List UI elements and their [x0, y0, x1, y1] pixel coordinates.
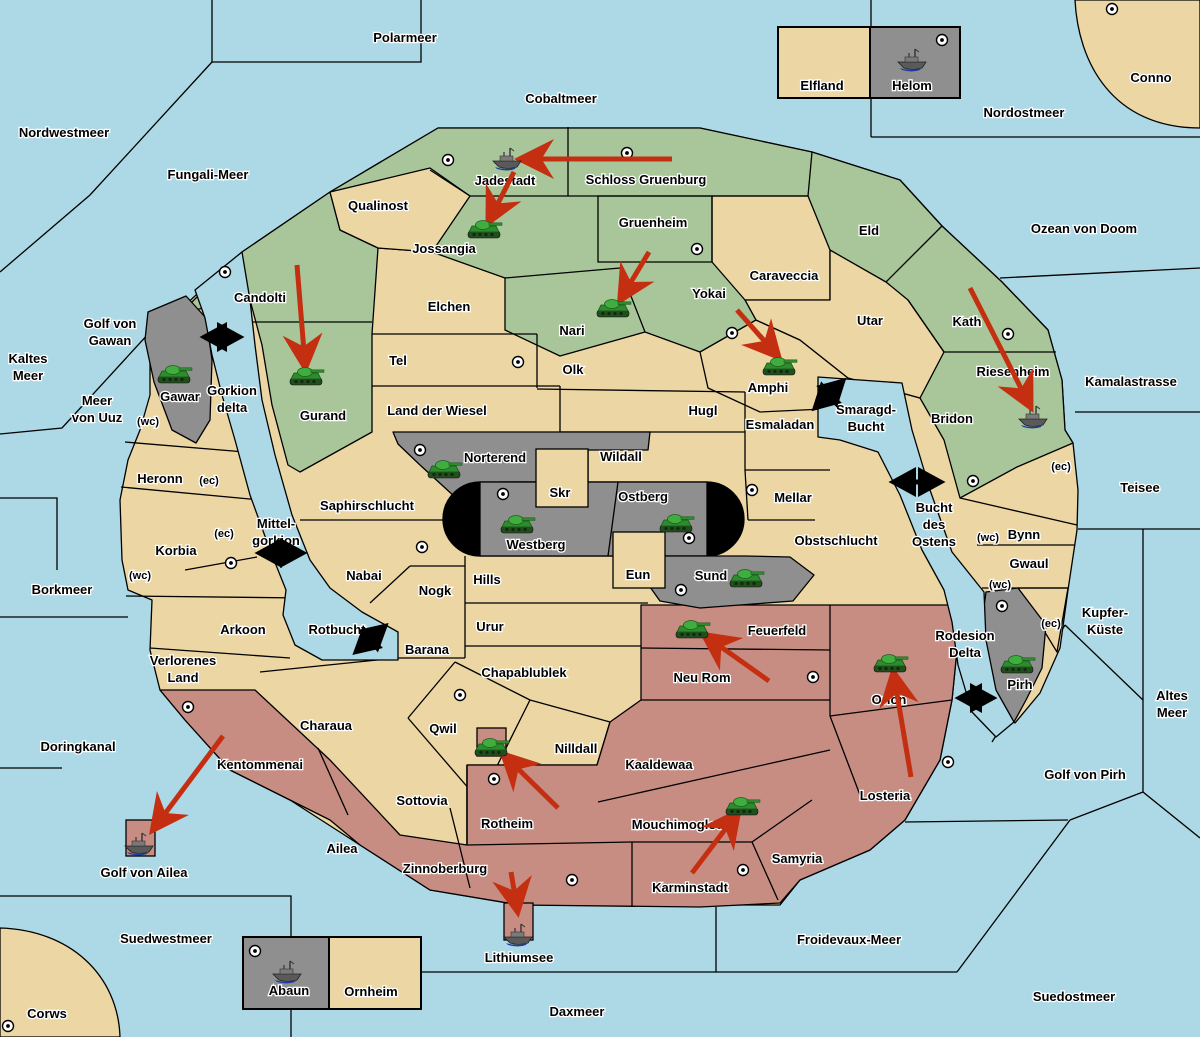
region-label-jossangia: Jossangia: [412, 241, 476, 256]
map-stage: PolarmeerCobaltmeerNordostmeerNordwestme…: [0, 0, 1200, 1037]
region-sund[interactable]: [645, 556, 814, 608]
region-label-gruenheim: Gruenheim: [619, 215, 688, 230]
connection-tag-heronn: (ec): [199, 475, 219, 487]
region-label-candolti: Candolti: [234, 290, 286, 305]
region-label-nordwestmeer: Nordwestmeer: [19, 125, 109, 140]
city-marker-sund: [676, 585, 687, 596]
city-marker-gruenheim: [692, 244, 703, 255]
region-label-smaragd-bucht: Smaragd-: [836, 402, 896, 417]
region-label-kaaldewaa: Kaaldewaa: [625, 757, 693, 772]
region-label-mouchimoglou: Mouchimoglou: [632, 817, 724, 832]
region-label-altes-meer: Meer: [1157, 705, 1187, 720]
region-label-mittel-gorkion: Mittel-: [257, 516, 295, 531]
city-marker-kath: [1003, 329, 1014, 340]
region-label-golf-von-gawan: Gawan: [89, 333, 132, 348]
city-marker-helom: [937, 35, 948, 46]
region-label-rodesion-delta: Delta: [949, 645, 982, 660]
city-marker-zinnoberburg: [567, 875, 578, 886]
region-label-utar: Utar: [857, 313, 883, 328]
region-label-suedwestmeer: Suedwestmeer: [120, 931, 212, 946]
region-label-ornheim: Ornheim: [344, 984, 397, 999]
region-label-feuerfeld: Feuerfeld: [748, 623, 807, 638]
city-marker-bridon: [968, 476, 979, 487]
region-label-golf-von-ailea: Golf von Ailea: [101, 865, 189, 880]
region-label-golf-von-gawan: Golf von: [84, 316, 137, 331]
region-label-elchen: Elchen: [428, 299, 471, 314]
connection-tag-korbia: (ec): [214, 528, 234, 540]
region-label-abaun: Abaun: [269, 983, 310, 998]
region-label-qwil: Qwil: [429, 721, 456, 736]
region-label-yokai: Yokai: [692, 286, 726, 301]
connection-tag-pirh-north: (wc): [989, 579, 1011, 591]
region-label-daxmeer: Daxmeer: [550, 1004, 605, 1019]
region-label-kamalastrasse: Kamalastrasse: [1085, 374, 1177, 389]
city-marker-rotheim: [489, 774, 500, 785]
city-marker-losteria: [943, 757, 954, 768]
region-label-hills: Hills: [473, 572, 500, 587]
region-label-arkoon: Arkoon: [220, 622, 266, 637]
region-label-rodesion-delta: Rodesion: [935, 628, 994, 643]
region-label-sottovia: Sottovia: [396, 793, 448, 808]
region-label-bridon: Bridon: [931, 411, 973, 426]
region-label-heronn: Heronn: [137, 471, 183, 486]
city-marker-pirh: [997, 601, 1008, 612]
region-label-lithiumsee: Lithiumsee: [485, 950, 554, 965]
region-label-wildall: Wildall: [600, 449, 642, 464]
region-label-kupfer-kueste: Kupfer-: [1082, 605, 1128, 620]
region-label-karminstadt: Karminstadt: [652, 880, 729, 895]
region-label-verlorenes-land: Land: [167, 670, 198, 685]
region-label-gwaul: Gwaul: [1009, 556, 1048, 571]
region-label-land-der-wiesel: Land der Wiesel: [387, 403, 487, 418]
region-label-pirh: Pirh: [1007, 677, 1032, 692]
region-label-corws: Corws: [27, 1006, 67, 1021]
region-label-mittel-gorkion: gorkion: [252, 533, 300, 548]
region-label-borkmeer: Borkmeer: [32, 582, 93, 597]
region-label-eun: Eun: [626, 567, 651, 582]
region-label-meer-von-uuz: Meer: [82, 393, 112, 408]
city-marker-nabai: [417, 542, 428, 553]
region-label-altes-meer: Altes: [1156, 688, 1188, 703]
region-label-saphirschlucht: Saphirschlucht: [320, 498, 415, 513]
region-label-froidevaux-meer: Froidevaux-Meer: [797, 932, 901, 947]
region-label-hugl: Hugl: [689, 403, 718, 418]
region-label-schloss-gruenburg: Schloss Gruenburg: [586, 172, 707, 187]
region-label-norterend: Norterend: [464, 450, 526, 465]
region-label-gawar: Gawar: [160, 389, 200, 404]
region-label-kaltes-meer: Meer: [13, 368, 43, 383]
region-label-nilldall: Nilldall: [555, 741, 598, 756]
region-label-smaragd-bucht: Bucht: [848, 419, 886, 434]
region-label-kath: Kath: [953, 314, 982, 329]
region-label-bynn: Bynn: [1008, 527, 1041, 542]
region-label-losteria: Losteria: [860, 788, 911, 803]
region-label-amphi: Amphi: [748, 380, 788, 395]
region-label-caraveccia: Caraveccia: [750, 268, 819, 283]
city-marker-norterend: [415, 445, 426, 456]
region-label-bucht-des-ostens: Ostens: [912, 534, 956, 549]
region-label-mellar: Mellar: [774, 490, 812, 505]
region-label-olk: Olk: [563, 362, 585, 377]
region-label-barana: Barana: [405, 642, 450, 657]
region-label-gurand: Gurand: [300, 408, 346, 423]
connection-tag-kupfer-kueste: (ec): [1041, 618, 1061, 630]
city-marker-mellar: [747, 485, 758, 496]
region-label-ostberg: Ostberg: [618, 489, 668, 504]
region-label-gorkion-delta: delta: [217, 400, 248, 415]
connection-tag-bynn: (wc): [977, 532, 999, 544]
connection-tag-korbia: (wc): [129, 570, 151, 582]
region-label-suedostmeer: Suedostmeer: [1033, 989, 1115, 1004]
region-label-rotheim: Rotheim: [481, 816, 533, 831]
city-marker-jadestadt: [443, 155, 454, 166]
region-label-golf-von-pirh: Golf von Pirh: [1044, 767, 1126, 782]
region-label-chapablublek: Chapablublek: [481, 665, 567, 680]
region-label-polarmeer: Polarmeer: [373, 30, 437, 45]
region-label-sund: Sund: [695, 568, 728, 583]
region-label-conno: Conno: [1130, 70, 1171, 85]
region-label-teisee: Teisee: [1120, 480, 1160, 495]
region-label-nordostmeer: Nordostmeer: [984, 105, 1065, 120]
city-marker-corws: [3, 1021, 14, 1032]
region-label-bucht-des-ostens: des: [923, 517, 945, 532]
region-label-nabai: Nabai: [346, 568, 381, 583]
region-label-doringkanal: Doringkanal: [40, 739, 115, 754]
region-label-esmaladan: Esmaladan: [746, 417, 815, 432]
region-label-verlorenes-land: Verlorenes: [150, 653, 217, 668]
region-label-skr: Skr: [550, 485, 571, 500]
region-label-fungali-meer: Fungali-Meer: [168, 167, 249, 182]
city-marker-yokai: [727, 328, 738, 339]
city-marker-ostberg: [684, 533, 695, 544]
region-label-ailea: Ailea: [326, 841, 358, 856]
region-label-helom: Helom: [892, 78, 932, 93]
city-marker-tel: [513, 357, 524, 368]
region-label-nari: Nari: [559, 323, 584, 338]
region-label-charaua: Charaua: [300, 718, 353, 733]
region-label-westberg: Westberg: [507, 537, 566, 552]
city-marker-korbia: [226, 558, 237, 569]
city-marker-kentommenai: [183, 702, 194, 713]
region-label-neu-rom: Neu Rom: [673, 670, 730, 685]
region-label-rotbucht: Rotbucht: [308, 622, 366, 637]
region-label-zinnoberburg: Zinnoberburg: [403, 861, 488, 876]
region-label-tel: Tel: [389, 353, 407, 368]
connection-tag-meer-von-uuz: (wc): [137, 416, 159, 428]
region-label-gorkion-delta: Gorkion: [207, 383, 257, 398]
region-label-ozean-von-doom: Ozean von Doom: [1031, 221, 1137, 236]
region-label-kupfer-kueste: Küste: [1087, 622, 1123, 637]
region-label-nogk: Nogk: [419, 583, 452, 598]
region-label-meer-von-uuz: von Uuz: [72, 410, 123, 425]
region-label-korbia: Korbia: [155, 543, 197, 558]
city-marker-candolti: [220, 267, 231, 278]
city-marker-abaun: [250, 946, 261, 957]
region-label-eld: Eld: [859, 223, 879, 238]
game-map[interactable]: PolarmeerCobaltmeerNordostmeerNordwestme…: [0, 0, 1200, 1037]
city-marker-qwil: [455, 690, 466, 701]
region-label-obstschlucht: Obstschlucht: [794, 533, 878, 548]
region-label-elfland: Elfland: [800, 78, 843, 93]
connection-tag-riesenheim-south: (ec): [1051, 461, 1071, 473]
region-label-urur: Urur: [476, 619, 503, 634]
region-label-kaltes-meer: Kaltes: [8, 351, 47, 366]
city-marker-conno: [1107, 4, 1118, 15]
region-label-kentommenai: Kentommenai: [217, 757, 303, 772]
city-marker-neu-rom: [808, 672, 819, 683]
city-marker-karminstadt: [738, 865, 749, 876]
city-marker-westberg: [498, 489, 509, 500]
region-label-cobaltmeer: Cobaltmeer: [525, 91, 597, 106]
region-label-samyria: Samyria: [772, 851, 823, 866]
region-label-qualinost: Qualinost: [348, 198, 409, 213]
region-label-bucht-des-ostens: Bucht: [916, 500, 954, 515]
